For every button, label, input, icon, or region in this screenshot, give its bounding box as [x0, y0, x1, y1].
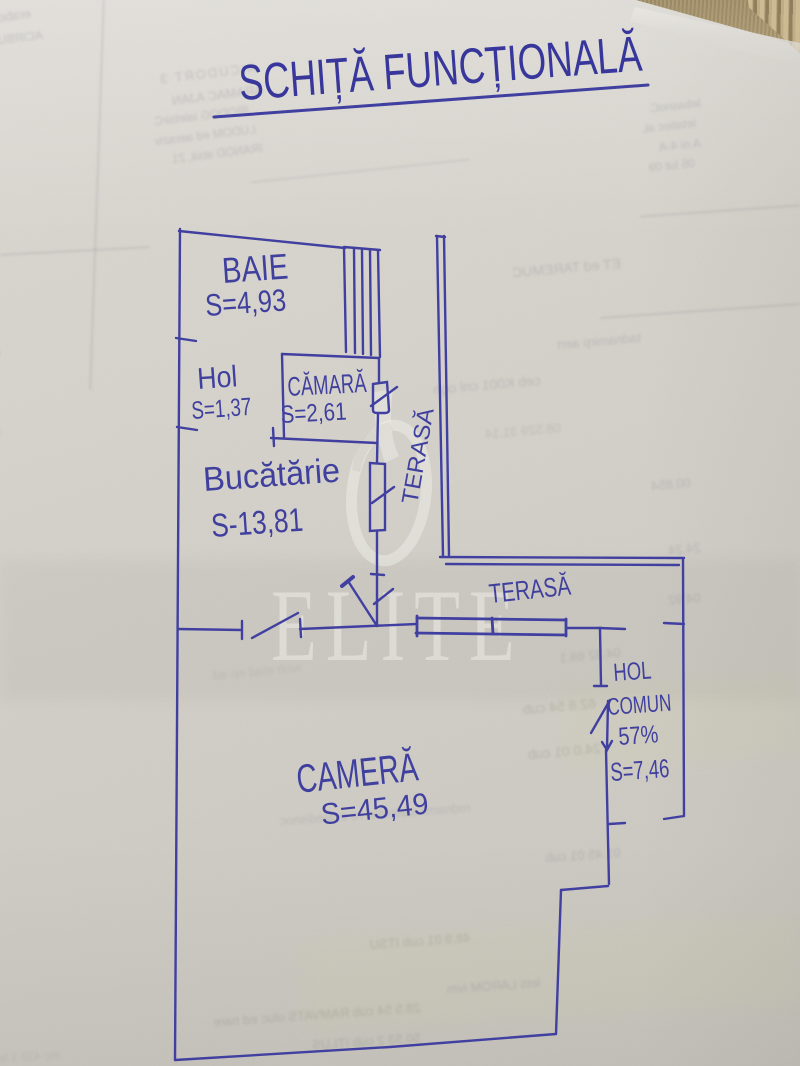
svg-text:S-13,81: S-13,81 — [210, 501, 304, 544]
svg-text:S=2,61: S=2,61 — [280, 398, 347, 429]
svg-text:S=4,93: S=4,93 — [204, 282, 287, 323]
svg-text:TERASĂ: TERASĂ — [396, 405, 439, 506]
svg-text:57%: 57% — [617, 720, 659, 751]
svg-text:S=7,46: S=7,46 — [609, 753, 670, 787]
svg-text:CĂMARĂ: CĂMARĂ — [287, 368, 367, 402]
svg-text:SCHIȚĂ FUNCȚIONALĂ: SCHIȚĂ FUNCȚIONALĂ — [237, 26, 644, 111]
svg-text:COMUN: COMUN — [607, 690, 673, 721]
svg-text:Bucătărie: Bucătărie — [202, 452, 341, 499]
svg-text:S=1,37: S=1,37 — [190, 393, 252, 425]
svg-text:HOL: HOL — [612, 656, 652, 687]
svg-text:TERASĂ: TERASĂ — [487, 571, 572, 609]
svg-text:Hol: Hol — [196, 360, 238, 396]
